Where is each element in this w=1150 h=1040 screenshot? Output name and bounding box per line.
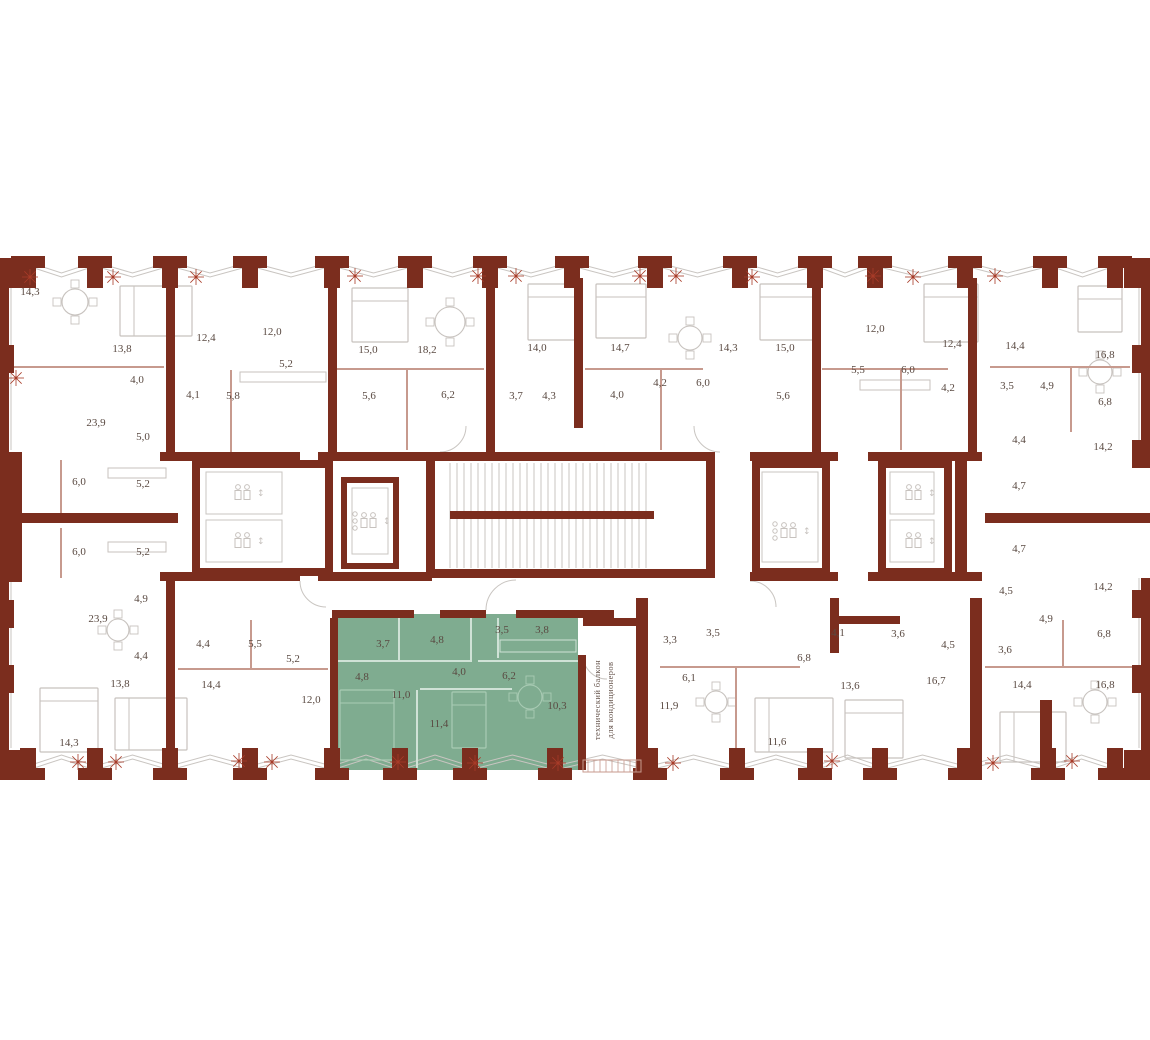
technical-balcony-label: технический балкондля кондиционеров — [592, 660, 615, 740]
wall-segment — [878, 568, 952, 576]
room-area-label: 14,4 — [201, 679, 221, 691]
room-area-label-highlighted: 4,0 — [452, 666, 466, 678]
plant-star-icon — [22, 269, 38, 285]
elevator-icon: ↕ — [235, 485, 265, 500]
wall-segment — [878, 460, 952, 468]
room-area-label: 15,0 — [358, 344, 378, 356]
plant-star-icon — [665, 755, 681, 771]
wall-segment — [583, 618, 643, 626]
room-area-label: 11,6 — [768, 736, 787, 748]
room-area-label: 14,4 — [1012, 679, 1032, 691]
room-area-label: 14,3 — [59, 737, 79, 749]
room-area-label: 12,0 — [865, 323, 885, 335]
wall-segment — [450, 511, 654, 519]
plant-star-icon — [508, 268, 524, 284]
room-area-label: 4,9 — [1040, 380, 1054, 392]
plant-star-icon — [632, 268, 648, 284]
wall-segment — [166, 278, 175, 456]
wall-segment — [752, 568, 830, 576]
room-area-label: 5,2 — [286, 653, 300, 665]
wall-segment — [325, 460, 333, 576]
wall-segment — [878, 460, 886, 576]
room-area-label: 14,2 — [1093, 441, 1112, 453]
freight-elevator-icon: ↕ — [353, 512, 391, 530]
wall-segment — [955, 460, 967, 576]
room-area-label: 12,4 — [196, 332, 216, 344]
plant-star-icon — [865, 268, 881, 284]
technical-balcony-text: технический балкон — [592, 660, 602, 740]
wall-segment — [192, 460, 200, 576]
room-area-label: 13,8 — [110, 678, 130, 690]
plant-star-icon — [467, 755, 483, 771]
room-area-label: 6,8 — [797, 652, 811, 664]
room-area-label: 4,3 — [542, 390, 556, 402]
room-area-label: 6,1 — [682, 672, 696, 684]
room-area-label: 6,8 — [1097, 628, 1111, 640]
wall-segment — [752, 460, 830, 468]
room-area-label: 4,9 — [1039, 613, 1053, 625]
room-area-label: 12,0 — [301, 694, 321, 706]
room-area-label: 3,6 — [891, 628, 905, 640]
plant-star-icon — [188, 269, 204, 285]
room-area-label: 16,8 — [1095, 349, 1115, 361]
wall-segment — [822, 460, 830, 576]
room-area-label: 5,0 — [136, 431, 150, 443]
room-area-label: 5,8 — [226, 390, 240, 402]
room-area-label: 5,2 — [136, 546, 150, 558]
wall-segment — [426, 569, 715, 578]
plant-star-icon — [390, 754, 406, 770]
room-area-label-highlighted: 3,8 — [535, 624, 549, 636]
wall-segment — [968, 278, 977, 456]
wall-segment — [192, 568, 333, 576]
svg-text:↕: ↕ — [803, 527, 811, 537]
wall-segment — [440, 610, 486, 618]
room-area-label: 23,9 — [88, 613, 108, 625]
room-area-label: 5,6 — [362, 390, 376, 402]
technical-balcony-text: для кондиционеров — [605, 662, 615, 739]
room-area-label: 14,7 — [610, 342, 630, 354]
room-area-label-highlighted: 4,8 — [355, 671, 369, 683]
room-area-label: 12,0 — [262, 326, 282, 338]
wall-segment — [341, 563, 399, 569]
floorplan: ↕↕↕↕↕↕14,313,84,012,412,05,24,15,823,95,… — [0, 0, 1150, 1040]
room-area-label: 11,9 — [660, 700, 679, 712]
room-area-label: 4,0 — [130, 374, 144, 386]
room-area-label: 4,2 — [653, 377, 667, 389]
room-area-label-highlighted: 3,5 — [495, 624, 509, 636]
plant-star-icon — [8, 370, 24, 386]
room-area-label-highlighted: 11,4 — [430, 718, 449, 730]
room-area-label-highlighted: 10,3 — [547, 700, 567, 712]
room-area-label: 3,3 — [663, 634, 677, 646]
wall-segment — [970, 598, 982, 770]
room-area-label: 3,5 — [1000, 380, 1014, 392]
svg-text:↕: ↕ — [928, 537, 936, 547]
room-area-label: 4,5 — [999, 585, 1013, 597]
wall-segment — [706, 452, 715, 578]
wall-segment — [332, 610, 414, 618]
room-area-label: 14,3 — [718, 342, 738, 354]
wall-segment — [426, 452, 715, 461]
wall-segment — [166, 578, 175, 768]
room-area-label: 4,2 — [941, 382, 955, 394]
freight-elevator-icon: ↕ — [773, 522, 811, 540]
wall-segment — [330, 618, 338, 770]
room-area-label: 14,3 — [20, 286, 40, 298]
plant-star-icon — [347, 268, 363, 284]
wall-segment — [750, 452, 838, 461]
plant-star-icon — [668, 268, 684, 284]
plant-star-icon — [108, 754, 124, 770]
plant-star-icon — [231, 753, 247, 769]
plant-star-icon — [1064, 753, 1080, 769]
room-area-label: 12,4 — [942, 338, 962, 350]
plant-star-icon — [744, 269, 760, 285]
svg-text:↕: ↕ — [383, 517, 391, 527]
room-area-label: 5,6 — [776, 390, 790, 402]
room-area-label: 4,0 — [610, 389, 624, 401]
room-area-label: 16,7 — [926, 675, 946, 687]
room-area-label: 4,1 — [831, 627, 845, 639]
room-area-label: 4,4 — [1012, 434, 1026, 446]
wall-segment — [328, 278, 337, 456]
wall-segment — [341, 477, 347, 569]
room-area-label: 6,2 — [441, 389, 455, 401]
room-area-label-highlighted: 4,8 — [430, 634, 444, 646]
wall-segment — [516, 610, 614, 618]
wall-segment — [812, 278, 821, 456]
room-area-label: 6,0 — [696, 377, 710, 389]
plant-star-icon — [105, 269, 121, 285]
room-area-label: 4,4 — [134, 650, 148, 662]
room-area-label: 18,2 — [417, 344, 436, 356]
plant-star-icon — [985, 755, 1001, 771]
wall-segment — [944, 460, 952, 576]
wall-segment — [486, 278, 495, 456]
room-area-label: 13,8 — [112, 343, 132, 355]
room-area-label-highlighted: 3,7 — [376, 638, 390, 650]
wall-segment — [830, 598, 839, 653]
plant-star-icon — [470, 268, 486, 284]
svg-text:↕: ↕ — [257, 489, 265, 499]
floorplan-svg: ↕↕↕↕↕↕14,313,84,012,412,05,24,15,823,95,… — [0, 0, 1150, 1040]
room-area-label: 13,6 — [840, 680, 860, 692]
room-area-label: 15,0 — [775, 342, 795, 354]
wall-segment — [574, 278, 583, 428]
room-area-label: 14,0 — [527, 342, 547, 354]
svg-text:↕: ↕ — [257, 537, 265, 547]
room-area-label: 6,0 — [72, 476, 86, 488]
room-area-label: 4,1 — [186, 389, 200, 401]
elevator-icon: ↕ — [906, 533, 936, 548]
elevator-cabin — [762, 472, 818, 562]
room-area-label: 5,2 — [136, 478, 150, 490]
wall-segment — [985, 513, 1150, 523]
room-area-label: 23,9 — [86, 417, 106, 429]
room-area-label: 4,5 — [941, 639, 955, 651]
wall-segment — [578, 655, 586, 770]
room-area-label: 4,7 — [1012, 480, 1026, 492]
room-area-label: 6,8 — [1098, 396, 1112, 408]
room-area-label: 5,5 — [851, 364, 865, 376]
room-area-label: 3,5 — [706, 627, 720, 639]
room-area-label: 5,5 — [248, 638, 262, 650]
room-area-label: 4,7 — [1012, 543, 1026, 555]
room-area-label: 3,6 — [998, 644, 1012, 656]
room-area-label: 5,2 — [279, 358, 293, 370]
wall-segment — [830, 616, 900, 624]
wall-segment — [393, 477, 399, 569]
wall-segment — [341, 477, 399, 483]
svg-text:↕: ↕ — [928, 489, 936, 499]
elevator-icon: ↕ — [906, 485, 936, 500]
elevator-icon: ↕ — [235, 533, 265, 548]
room-area-label-highlighted: 11,0 — [392, 689, 411, 701]
plant-star-icon — [70, 754, 86, 770]
plant-star-icon — [905, 269, 921, 285]
room-area-label: 16,8 — [1095, 679, 1115, 691]
room-area-label: 14,2 — [1093, 581, 1112, 593]
plant-star-icon — [987, 268, 1003, 284]
room-area-label: 6,0 — [901, 364, 915, 376]
room-area-label: 3,7 — [509, 390, 523, 402]
room-area-label: 14,4 — [1005, 340, 1025, 352]
plant-star-icon — [550, 755, 566, 771]
wall-segment — [0, 513, 178, 523]
wall-segment — [318, 572, 432, 581]
wall-segment — [426, 452, 435, 578]
room-area-label: 6,0 — [72, 546, 86, 558]
room-area-label-highlighted: 6,2 — [502, 670, 516, 682]
wall-segment — [868, 452, 982, 461]
wall-segment — [192, 460, 333, 468]
wall-segment — [0, 452, 22, 582]
wall-segment — [160, 452, 300, 461]
wall-segment — [752, 460, 760, 576]
plant-star-icon — [264, 754, 280, 770]
room-area-label: 4,4 — [196, 638, 210, 650]
wall-segment — [640, 622, 648, 770]
plant-star-icon — [824, 753, 840, 769]
room-area-label: 4,9 — [134, 593, 148, 605]
